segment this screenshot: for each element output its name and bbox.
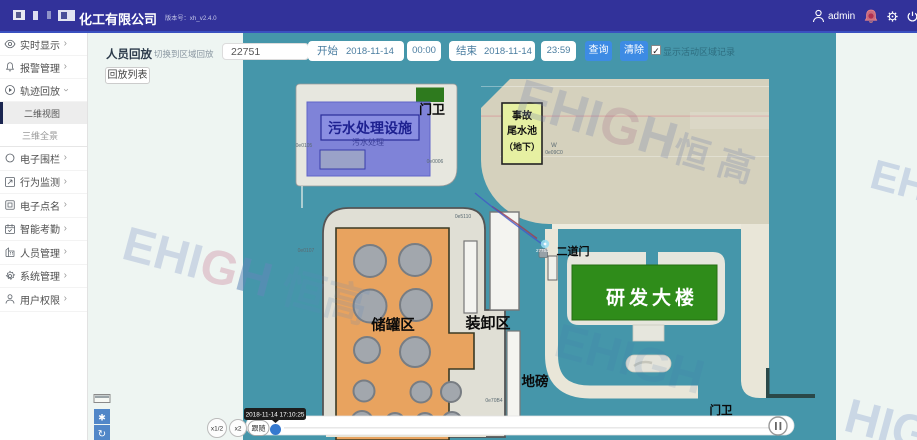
svg-text:0e0006: 0e0006 [427,159,444,165]
svg-text:27751: 27751 [536,248,549,253]
svg-text:x2: x2 [235,426,242,433]
svg-text:（地下）: （地下） [504,141,540,152]
svg-text:0e70B4: 0e70B4 [485,398,502,404]
svg-text:二道门: 二道门 [557,244,590,258]
svg-text:W: W [551,143,557,149]
svg-text:0e0105: 0e0105 [296,143,313,149]
svg-text:0e5110: 0e5110 [455,214,472,220]
svg-text:污水处理: 污水处理 [352,137,384,147]
svg-text:跟随: 跟随 [252,424,266,433]
svg-text:储罐区: 储罐区 [371,316,415,334]
svg-text:装卸区: 装卸区 [464,314,510,332]
svg-text:门卫: 门卫 [710,403,733,417]
svg-text:污水处理设施: 污水处理设施 [328,120,412,136]
svg-text:门卫: 门卫 [419,102,445,117]
svg-text:2018-11-14 17:10:25: 2018-11-14 17:10:25 [246,412,305,419]
svg-text:↻: ↻ [98,429,106,440]
svg-text:地磅: 地磅 [522,373,550,389]
svg-text:✱: ✱ [98,413,106,423]
svg-text:研发大楼: 研发大楼 [606,286,698,309]
svg-text:x1/2: x1/2 [211,426,224,433]
svg-text:0e0107: 0e0107 [298,248,315,254]
svg-text:0e09C0: 0e09C0 [545,150,563,156]
